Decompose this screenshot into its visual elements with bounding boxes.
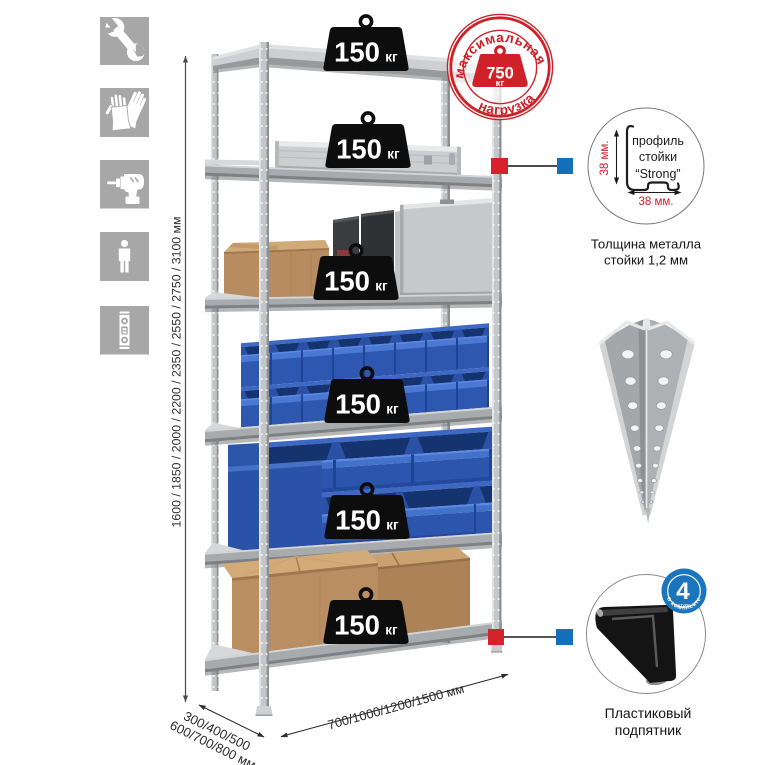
svg-text:профиль: профиль xyxy=(632,134,684,148)
svg-text:38 мм.: 38 мм. xyxy=(599,141,611,176)
svg-text:1600 / 1850 / 2000 / 2200 / 23: 1600 / 1850 / 2000 / 2200 / 2350 / 2550 … xyxy=(170,217,184,528)
svg-text:Пластиковый: Пластиковый xyxy=(605,705,692,721)
svg-text:стойки: стойки xyxy=(639,150,677,164)
svg-text:“Strong”: “Strong” xyxy=(635,167,680,181)
svg-text:стойки 1,2 мм: стойки 1,2 мм xyxy=(604,253,688,268)
svg-text:подпятник: подпятник xyxy=(615,722,682,738)
svg-text:кг: кг xyxy=(496,78,505,89)
svg-text:700/1000/1200/1500 мм: 700/1000/1200/1500 мм xyxy=(326,681,466,733)
svg-text:4: 4 xyxy=(676,578,690,605)
svg-text:Толщина металла: Толщина металла xyxy=(591,237,702,252)
svg-text:38 мм.: 38 мм. xyxy=(639,196,674,208)
